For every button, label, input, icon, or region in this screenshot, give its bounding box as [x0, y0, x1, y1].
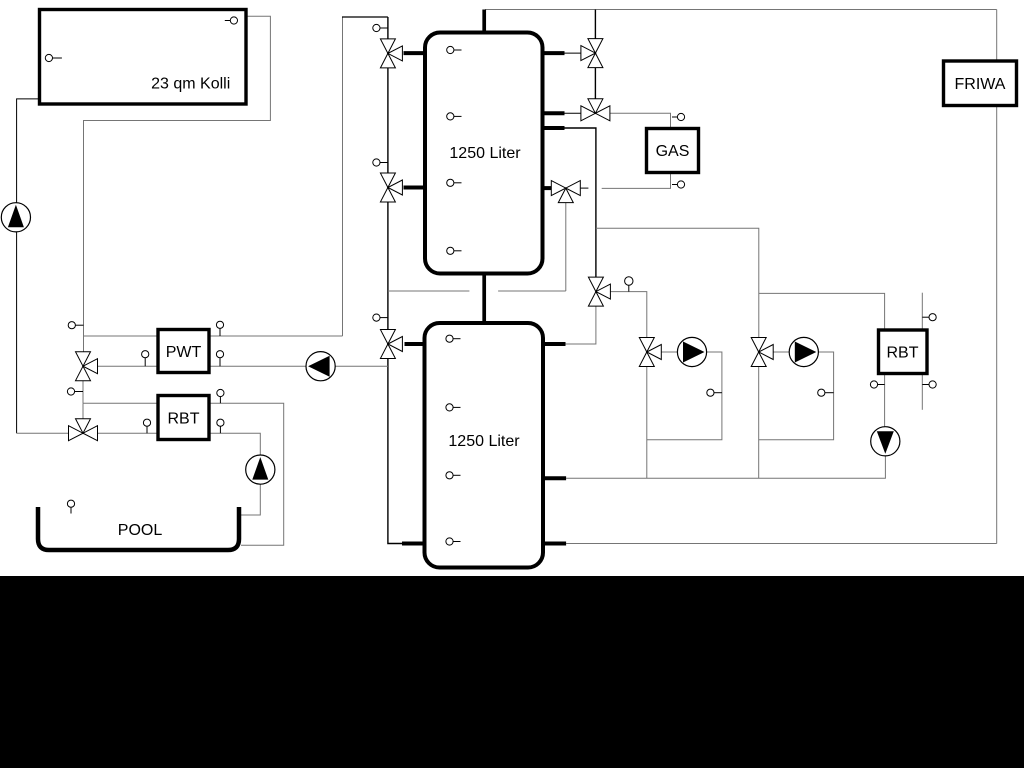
- svg-text:PWT: PWT: [166, 344, 202, 361]
- svg-text:FRIWA: FRIWA: [955, 76, 1006, 93]
- svg-text:1250 Liter: 1250 Liter: [448, 433, 520, 450]
- svg-text:23 qm Kolli: 23 qm Kolli: [151, 75, 230, 92]
- svg-text:1250 Liter: 1250 Liter: [449, 145, 521, 162]
- svg-text:RBT: RBT: [887, 345, 919, 362]
- svg-text:POOL: POOL: [118, 522, 163, 539]
- svg-text:GAS: GAS: [656, 143, 690, 160]
- svg-text:RBT: RBT: [168, 411, 200, 428]
